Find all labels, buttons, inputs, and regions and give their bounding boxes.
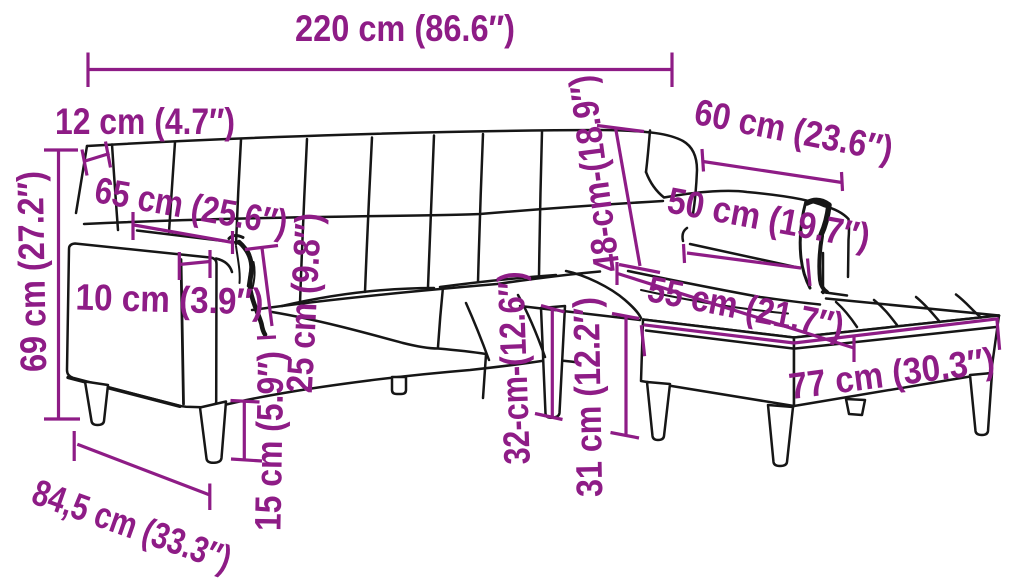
svg-text:69 cm (27.2″): 69 cm (27.2″) [10, 171, 55, 373]
svg-text:32-cm-(12.6″): 32-cm-(12.6″) [490, 271, 538, 465]
svg-text:10 cm (3.9″): 10 cm (3.9″) [75, 277, 264, 323]
svg-text:220 cm (86.6″): 220 cm (86.6″) [295, 8, 515, 49]
svg-text:15 cm (5.9″): 15 cm (5.9″) [247, 351, 291, 532]
svg-text:12 cm (4.7″): 12 cm (4.7″) [55, 101, 235, 142]
svg-text:31 cm (12.2″): 31 cm (12.2″) [566, 297, 610, 498]
